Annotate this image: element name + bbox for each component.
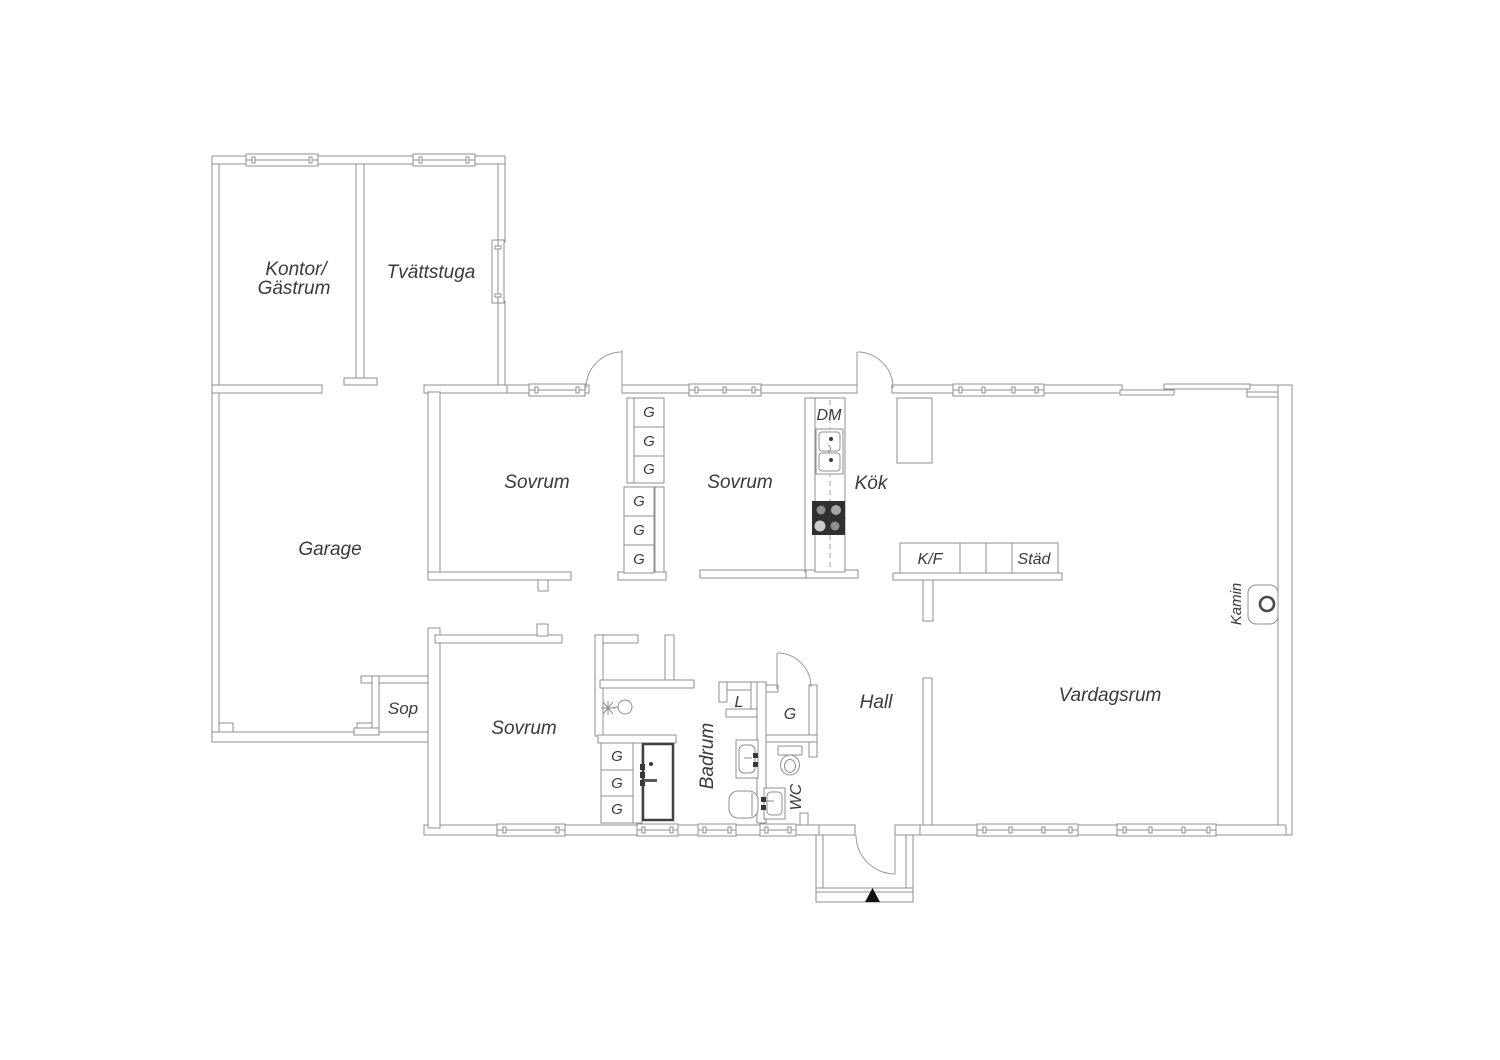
bathroom-door-leaf bbox=[640, 744, 673, 820]
wc-sink bbox=[761, 788, 785, 819]
stove bbox=[812, 501, 845, 535]
door-entrance bbox=[856, 835, 895, 874]
window bbox=[492, 240, 504, 303]
door-hall-closet bbox=[777, 653, 811, 689]
room-label-kontor-line1: Kontor/ bbox=[265, 259, 328, 280]
room-label-kok: Kök bbox=[855, 473, 889, 494]
window bbox=[953, 384, 1044, 396]
label-wardrobe: G bbox=[643, 461, 655, 478]
label-dishwasher: DM bbox=[817, 407, 843, 424]
room-label-badrum: Badrum bbox=[697, 723, 718, 790]
walls bbox=[212, 156, 1292, 902]
kitchen-sink bbox=[816, 429, 843, 474]
label-wardrobe: G bbox=[633, 522, 645, 539]
sliding-door bbox=[1120, 384, 1250, 395]
room-label-sop: Sop bbox=[388, 699, 418, 718]
room-label-kontor-line2: Gästrum bbox=[258, 278, 331, 299]
fireplace bbox=[1248, 585, 1278, 624]
room-label-vardagsrum: Vardagsrum bbox=[1059, 685, 1162, 706]
door-terrace-2 bbox=[857, 352, 893, 389]
window bbox=[760, 824, 796, 836]
floor-plan-drawing: Kontor/ Gästrum Tvättstuga Garage Sovrum… bbox=[0, 0, 1500, 1060]
label-wardrobe: G bbox=[633, 493, 645, 510]
shower bbox=[601, 700, 632, 715]
room-label-sovrum-1: Sovrum bbox=[504, 472, 569, 493]
door-terrace-1 bbox=[586, 350, 622, 389]
label-wardrobe: G bbox=[611, 748, 623, 765]
label-wardrobe: G bbox=[611, 775, 623, 792]
label-kamin: Kamin bbox=[1228, 583, 1245, 626]
window bbox=[977, 824, 1078, 836]
window bbox=[529, 384, 585, 396]
room-label-hall: Hall bbox=[860, 692, 894, 713]
room-label-wc: WC bbox=[788, 783, 805, 810]
room-label-sovrum-3: Sovrum bbox=[491, 718, 556, 739]
label-wardrobe: G bbox=[643, 433, 655, 450]
window bbox=[413, 154, 475, 166]
room-label-garage: Garage bbox=[298, 539, 361, 560]
label-stad: Städ bbox=[1018, 551, 1052, 568]
washbasin bbox=[736, 740, 758, 778]
window bbox=[497, 824, 565, 836]
window bbox=[246, 154, 318, 166]
window bbox=[698, 824, 736, 836]
label-wardrobe: G bbox=[633, 551, 645, 568]
label-linen-closet: L bbox=[735, 694, 744, 711]
bathtub bbox=[729, 791, 758, 818]
window bbox=[689, 384, 761, 396]
window bbox=[1117, 824, 1216, 836]
label-wardrobe: G bbox=[611, 801, 623, 818]
floor-plan-page: Kontor/ Gästrum Tvättstuga Garage Sovrum… bbox=[0, 0, 1500, 1060]
label-wardrobe: G bbox=[784, 706, 796, 723]
label-fridge-freezer: K/F bbox=[918, 551, 944, 568]
window bbox=[637, 824, 678, 836]
label-wardrobe: G bbox=[643, 404, 655, 421]
room-label-sovrum-2: Sovrum bbox=[707, 472, 772, 493]
toilet bbox=[778, 746, 802, 775]
room-label-tvattstuga: Tvättstuga bbox=[387, 262, 476, 283]
